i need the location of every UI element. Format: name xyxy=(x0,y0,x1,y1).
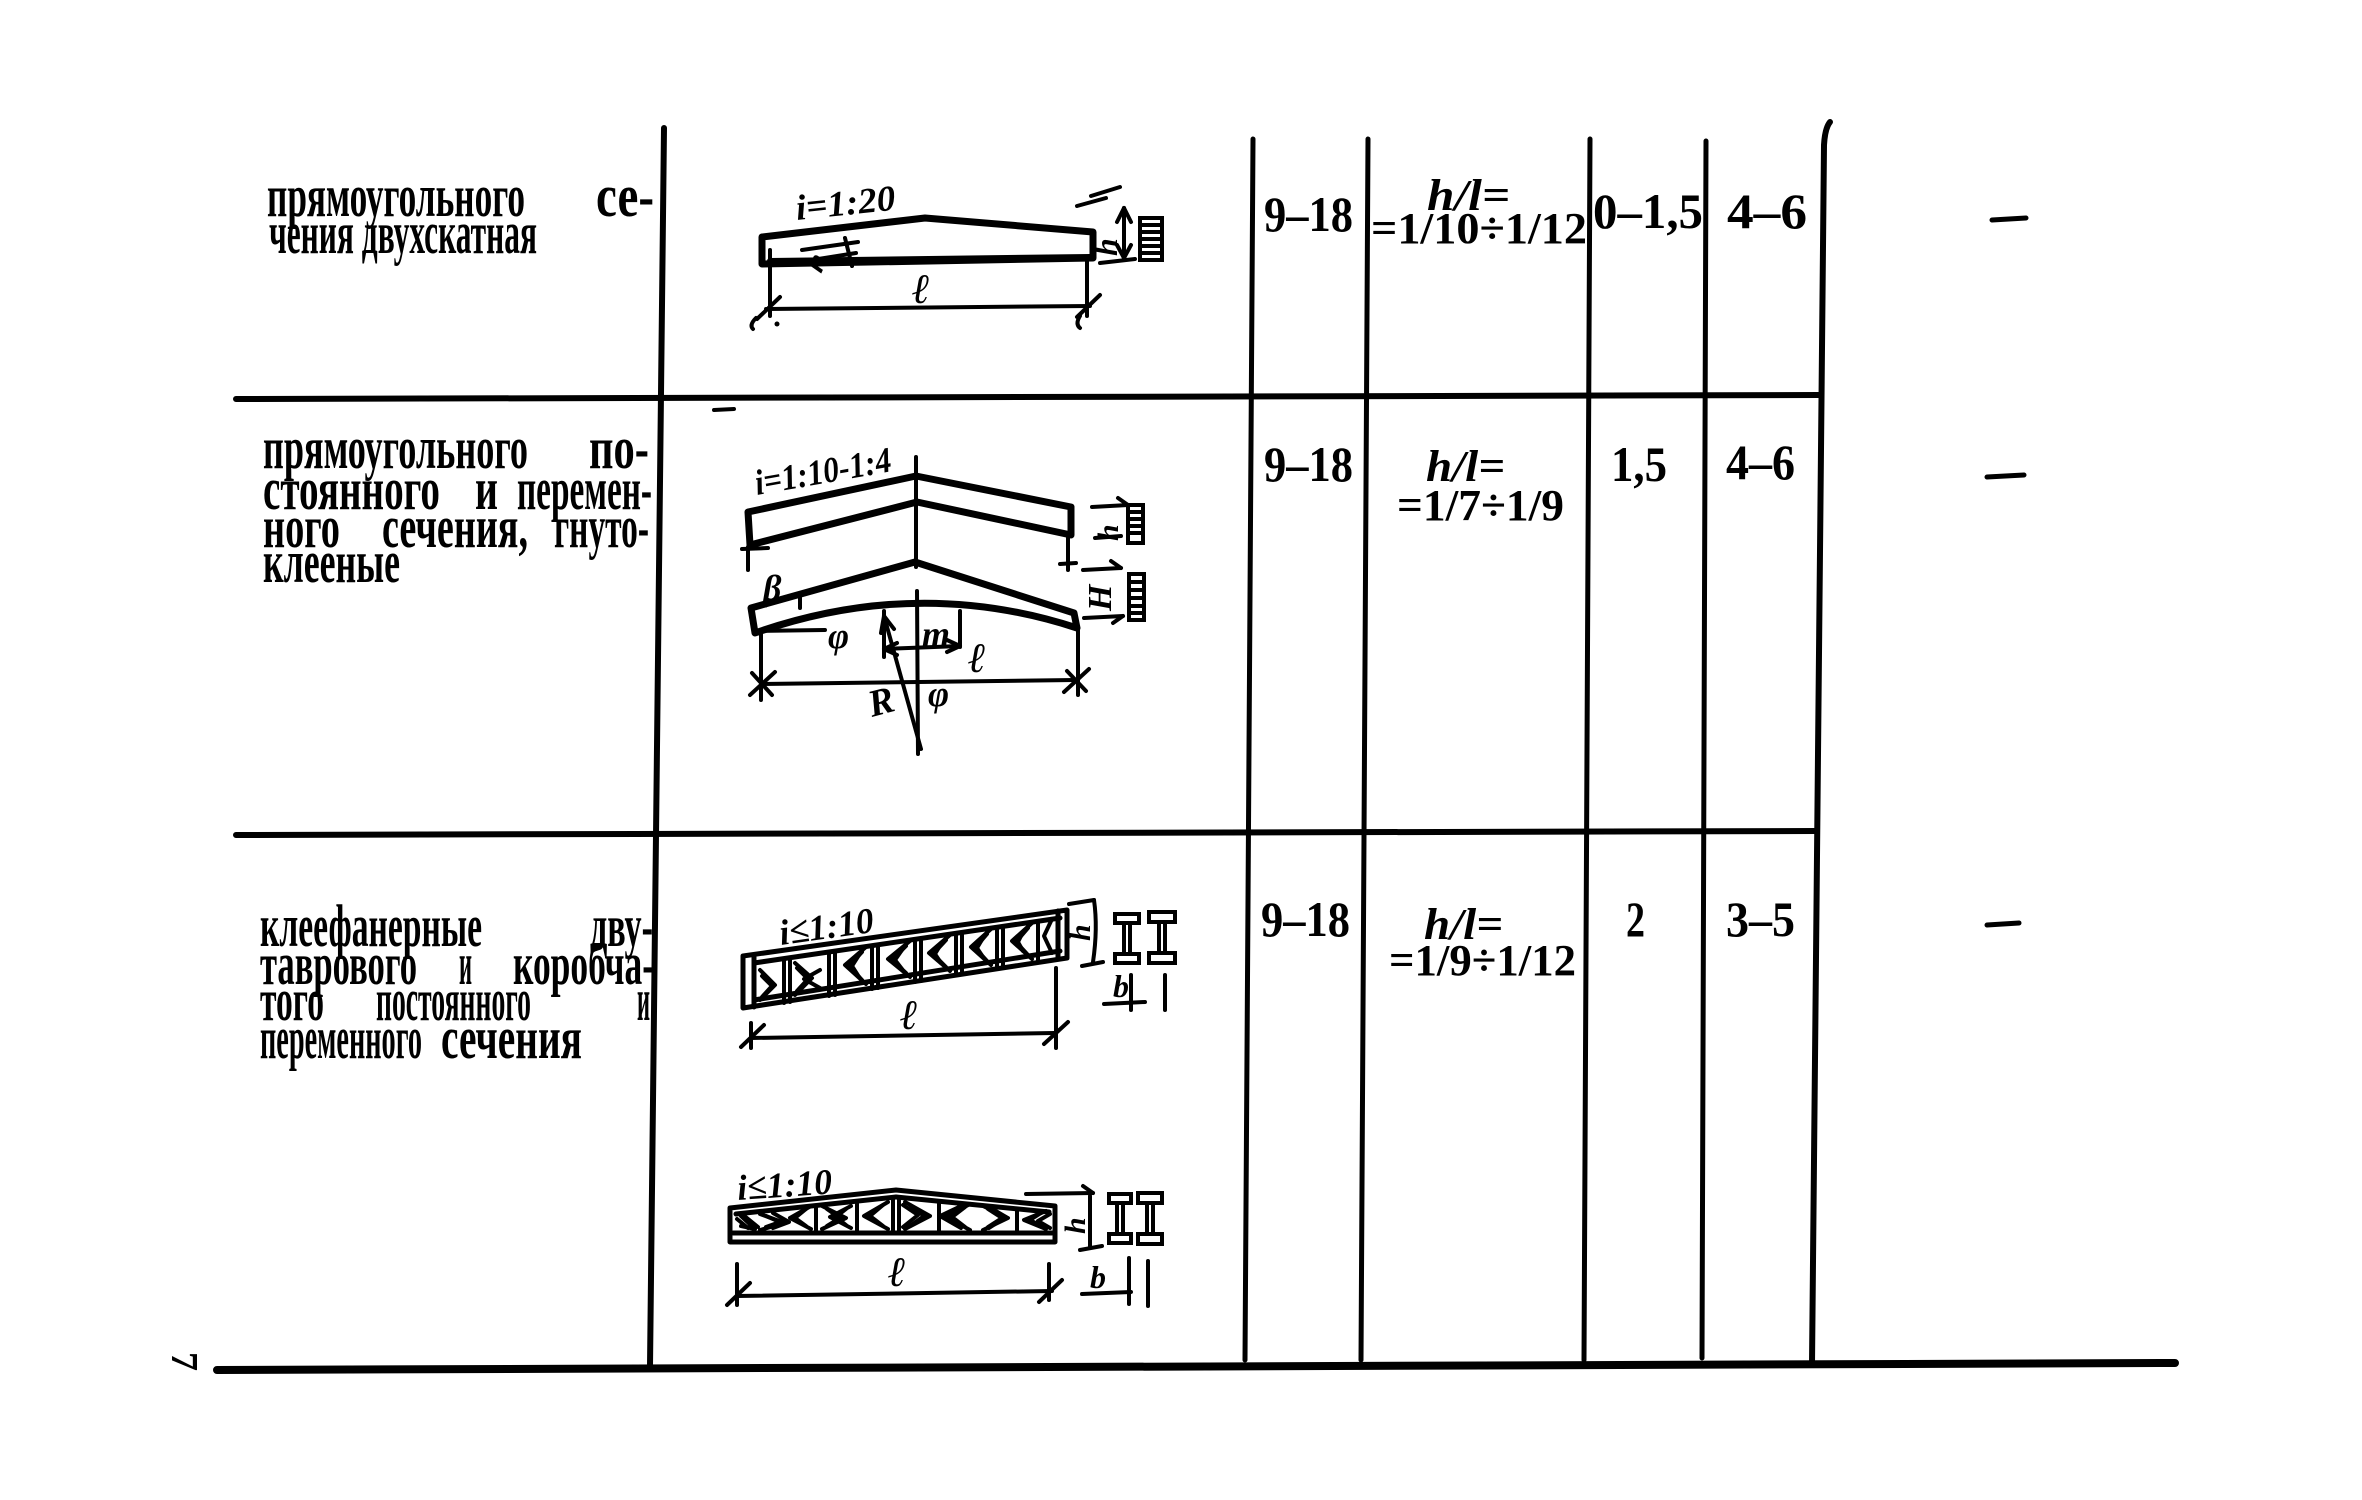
svg-text:φ: φ xyxy=(828,616,849,656)
svg-text:=1/10÷1/12: =1/10÷1/12 xyxy=(1371,204,1587,253)
svg-text:9–18: 9–18 xyxy=(1264,186,1353,242)
svg-text:b: b xyxy=(1113,968,1129,1004)
svg-text:9–18: 9–18 xyxy=(1264,436,1353,492)
svg-text:клееные: клееные xyxy=(263,529,400,595)
svg-text:=1/7÷1/9: =1/7÷1/9 xyxy=(1397,481,1564,530)
svg-text:1,5: 1,5 xyxy=(1611,436,1667,492)
svg-text:се-: се- xyxy=(596,163,654,229)
svg-text:4–6: 4–6 xyxy=(1726,434,1795,490)
svg-text:0–1,5: 0–1,5 xyxy=(1593,183,1703,239)
svg-text:переменного: переменного xyxy=(260,1005,422,1071)
svg-text:чения двухскатная: чения двухскатная xyxy=(269,200,537,266)
svg-text:i≤1:10: i≤1:10 xyxy=(736,1161,834,1208)
svg-text:β: β xyxy=(761,568,782,608)
svg-text:коробча-: коробча- xyxy=(513,931,654,997)
svg-text:гнуто-: гнуто- xyxy=(554,494,649,560)
svg-text:ℓ: ℓ xyxy=(900,993,918,1039)
svg-text:ℓ: ℓ xyxy=(888,1250,906,1296)
svg-text:H: H xyxy=(1082,583,1119,612)
svg-text:7: 7 xyxy=(163,1352,205,1371)
svg-text:b: b xyxy=(1090,1259,1106,1295)
svg-text:3–5: 3–5 xyxy=(1726,891,1795,947)
svg-text:=1/9÷1/12: =1/9÷1/12 xyxy=(1389,936,1576,985)
svg-text:h: h xyxy=(1088,238,1124,256)
svg-text:и: и xyxy=(637,967,650,1033)
svg-text:4–6: 4–6 xyxy=(1727,183,1807,239)
svg-text:m: m xyxy=(922,614,950,654)
svg-text:ℓ: ℓ xyxy=(968,636,986,682)
svg-text:сечения: сечения xyxy=(441,1005,582,1071)
svg-text:h: h xyxy=(1064,924,1097,941)
svg-text:h: h xyxy=(1092,524,1125,541)
svg-text:ℓ: ℓ xyxy=(912,267,930,313)
svg-text:9–18: 9–18 xyxy=(1261,891,1350,947)
svg-text:2: 2 xyxy=(1626,891,1645,947)
svg-text:сечения,: сечения, xyxy=(382,494,528,560)
svg-text:h: h xyxy=(1059,1217,1092,1234)
